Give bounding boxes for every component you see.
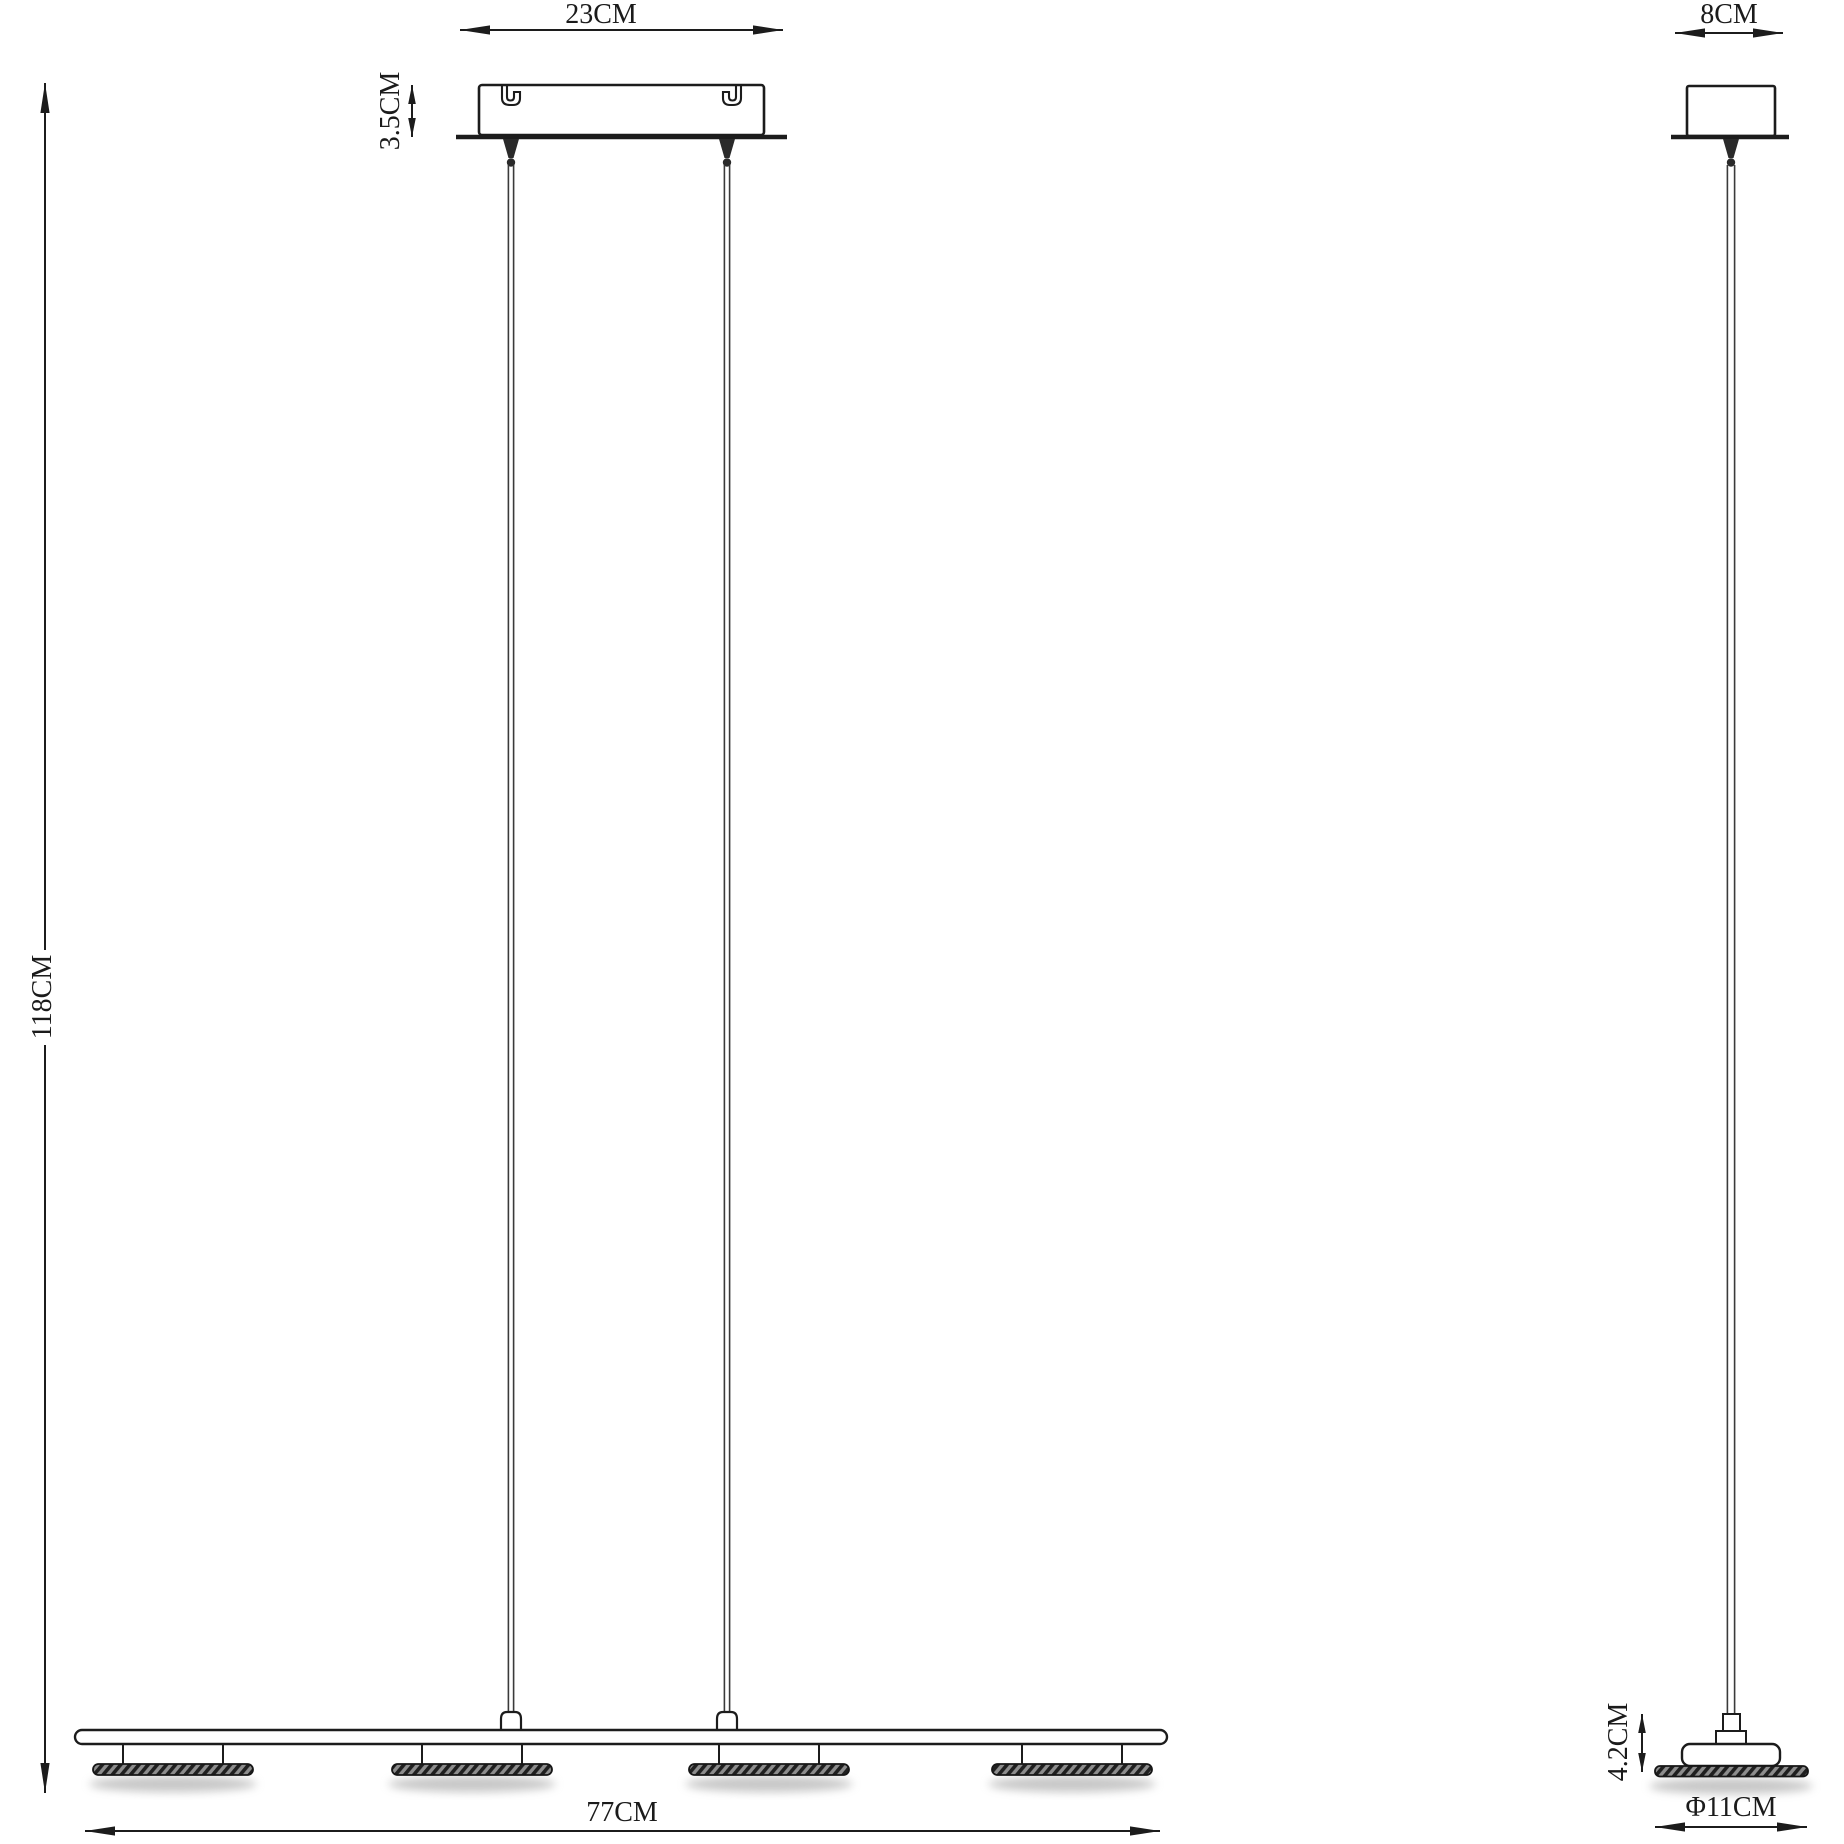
lamp-disc xyxy=(392,1764,552,1775)
lamp-head-1 xyxy=(89,1744,257,1792)
dim-head-height xyxy=(1638,1714,1646,1772)
dim-label-head-diameter: Φ11CM xyxy=(1686,1794,1777,1822)
lamp-disc xyxy=(689,1764,849,1775)
ceiling-canopy-front xyxy=(479,85,764,135)
connector-step-large xyxy=(1716,1731,1746,1744)
connector-step-small xyxy=(1723,1714,1740,1731)
arrowhead xyxy=(1130,1826,1160,1835)
bar-connector xyxy=(501,1712,521,1731)
lamp-disc xyxy=(992,1764,1152,1775)
front-view-linework xyxy=(40,25,1167,1835)
arrowhead xyxy=(85,1826,115,1835)
cable-cone xyxy=(719,139,735,158)
arrowhead xyxy=(1777,1822,1807,1831)
disc-shadow xyxy=(988,1776,1156,1792)
disc-shadow xyxy=(89,1776,257,1792)
arrowhead xyxy=(753,25,783,34)
lamp-body-side xyxy=(1682,1744,1780,1766)
arrowhead xyxy=(408,85,416,104)
arrowhead xyxy=(1638,1714,1646,1733)
suspension-cable-side xyxy=(1727,165,1734,1714)
disc-shadow xyxy=(388,1776,556,1792)
arrowhead xyxy=(40,83,49,113)
arrowhead xyxy=(1655,1822,1685,1831)
dim-label-canopy-height: 3.5CM xyxy=(377,72,405,151)
dim-label-canopy-depth: 8CM xyxy=(1700,1,1758,29)
arrowhead xyxy=(1638,1753,1646,1772)
arrowhead xyxy=(460,25,490,34)
dim-label-canopy-width: 23CM xyxy=(565,1,637,29)
drawing-canvas: 23CM 3.5CM 118CM 77CM 8CM 4.2CM Φ11CM xyxy=(0,0,1844,1844)
lamp-head-4 xyxy=(988,1744,1156,1792)
cable-cone xyxy=(503,139,519,158)
side-view-linework xyxy=(1638,28,1813,1831)
cable-cone xyxy=(1723,139,1739,158)
dim-canopy-height xyxy=(408,85,416,137)
dim-label-bar-length: 77CM xyxy=(586,1799,658,1827)
linework-svg xyxy=(0,0,1844,1844)
arrowhead xyxy=(408,118,416,137)
lamp-head-3 xyxy=(685,1744,853,1792)
arrowhead xyxy=(40,1763,49,1793)
dim-label-overall-height: 118CM xyxy=(29,955,57,1040)
lamp-head-2 xyxy=(388,1744,556,1792)
dim-overall-height xyxy=(40,83,49,1793)
lamp-disc xyxy=(1655,1766,1808,1777)
ceiling-canopy-side xyxy=(1687,86,1775,136)
suspension-cables-front xyxy=(508,165,729,1713)
light-bar xyxy=(75,1730,1167,1744)
disc-shadow xyxy=(685,1776,853,1792)
dim-label-head-height: 4.2CM xyxy=(1605,1703,1633,1782)
bar-connector xyxy=(717,1712,737,1731)
dim-head-diameter xyxy=(1655,1822,1807,1831)
lamp-head-side xyxy=(1649,1744,1813,1794)
lamp-disc xyxy=(93,1764,253,1775)
